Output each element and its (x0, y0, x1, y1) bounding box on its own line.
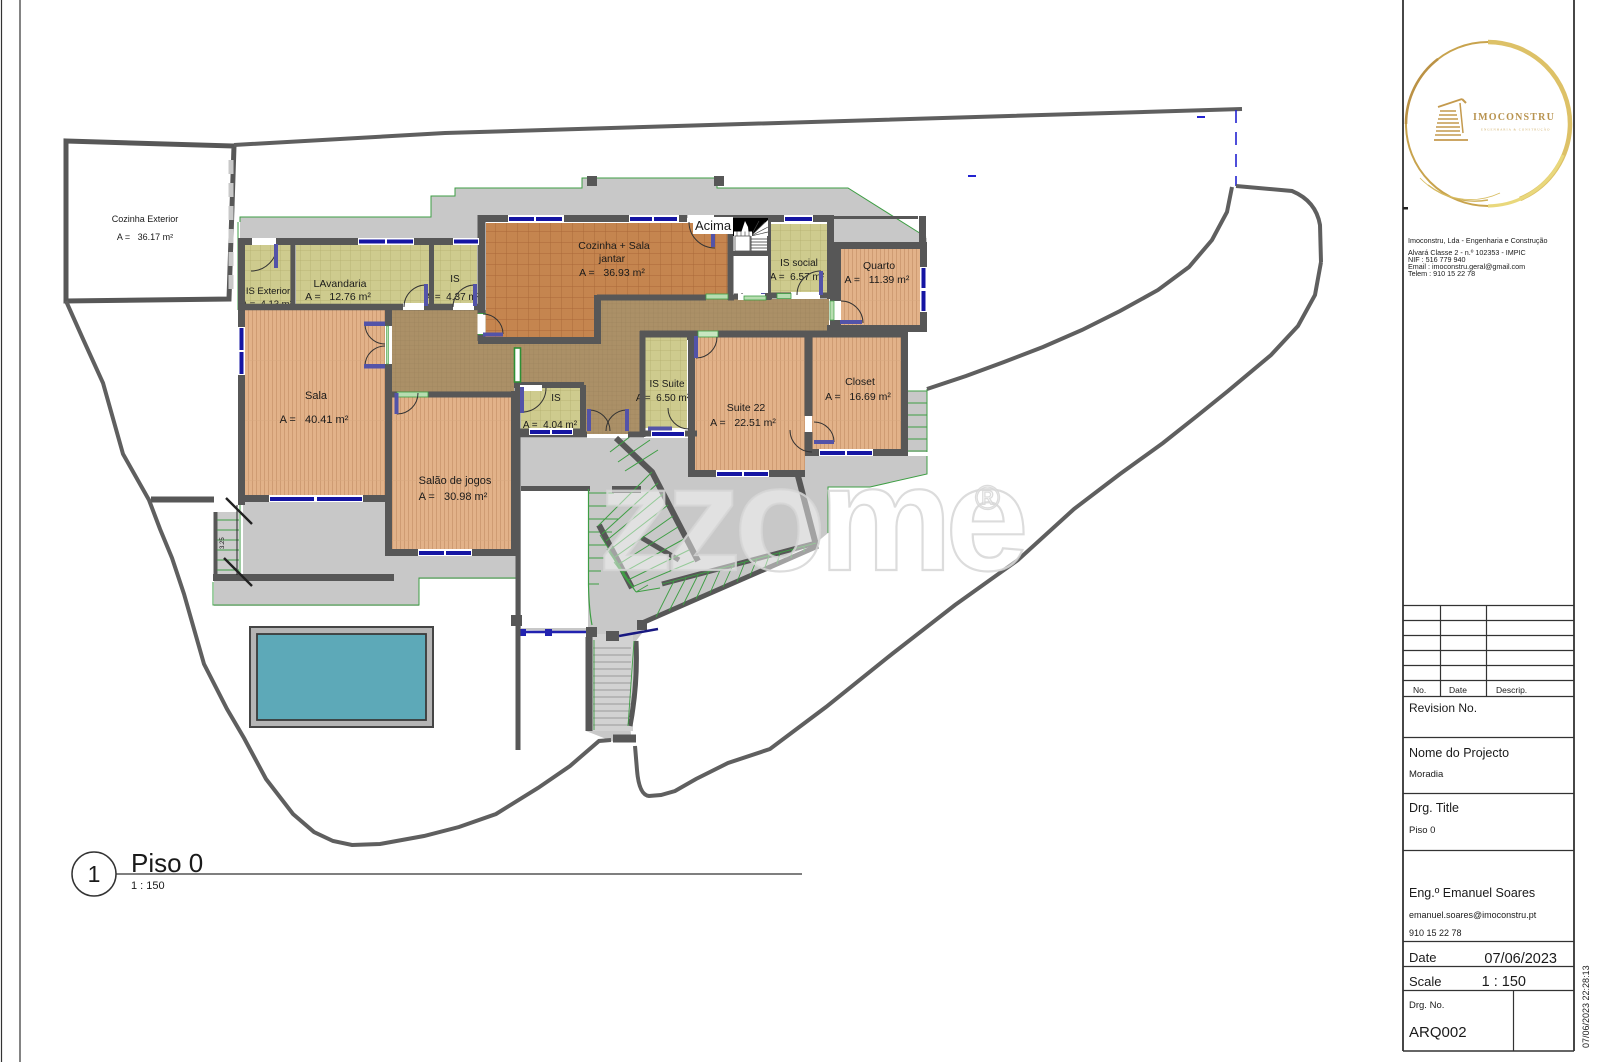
svg-text:Salão de jogos: Salão de jogos (419, 475, 492, 487)
svg-text:Moradia: Moradia (1409, 769, 1444, 780)
svg-text:Acima: Acima (695, 218, 732, 233)
svg-text:Imoconstru, Lda - Engenharia e: Imoconstru, Lda - Engenharia e Construçã… (1408, 236, 1547, 245)
svg-text:IS social: IS social (780, 258, 818, 269)
svg-text:Piso 0: Piso 0 (1409, 825, 1435, 836)
svg-text:Drg. No.: Drg. No. (1409, 1000, 1444, 1011)
svg-text:1 : 150: 1 : 150 (131, 880, 165, 892)
svg-text:A = 12.76 m²: A = 12.76 m² (305, 291, 371, 303)
svg-text:Nome do Projecto: Nome do Projecto (1409, 746, 1509, 760)
svg-text:Drg. Title: Drg. Title (1409, 801, 1459, 815)
svg-text:Cozinha Exterior: Cozinha Exterior (112, 214, 179, 224)
svg-text:emanuel.soares@imoconstru.pt: emanuel.soares@imoconstru.pt (1409, 910, 1537, 920)
svg-text:Revision No.: Revision No. (1409, 701, 1477, 715)
svg-text:IS: IS (551, 393, 561, 404)
svg-text:Suite 22: Suite 22 (727, 402, 766, 414)
svg-text:1: 1 (88, 861, 101, 887)
svg-text:07/06/2023: 07/06/2023 (1484, 951, 1557, 967)
svg-text:zzome: zzome (598, 434, 1024, 602)
svg-text:No.: No. (1413, 685, 1426, 695)
svg-text:A = 30.98 m²: A = 30.98 m² (419, 491, 488, 503)
svg-text:ENGENHARIA & CONSTRUÇÃO: ENGENHARIA & CONSTRUÇÃO (1481, 127, 1550, 132)
svg-text:IS Exterior: IS Exterior (246, 286, 290, 297)
svg-text:Piso 0: Piso 0 (131, 848, 203, 878)
svg-text:A = 36.93 m²: A = 36.93 m² (579, 267, 645, 279)
svg-text:Descrip.: Descrip. (1496, 685, 1527, 695)
svg-text:Eng.º Emanuel Soares: Eng.º Emanuel Soares (1409, 886, 1535, 900)
svg-text:A = 22.51 m²: A = 22.51 m² (710, 417, 776, 429)
svg-text:A = 16.69 m²: A = 16.69 m² (825, 391, 891, 403)
svg-text:Sala: Sala (305, 390, 328, 402)
svg-text:IMOCONSTRU: IMOCONSTRU (1473, 112, 1555, 123)
svg-text:A = 6.57 m²: A = 6.57 m² (770, 272, 825, 283)
svg-text:Telem : 910 15 22 78: Telem : 910 15 22 78 (1408, 269, 1475, 278)
svg-text:LAvandaria: LAvandaria (314, 278, 367, 290)
svg-text:Quarto: Quarto (863, 260, 895, 272)
svg-text:07/06/2023 22:28:13: 07/06/2023 22:28:13 (1581, 965, 1591, 1048)
svg-text:Date: Date (1409, 950, 1436, 965)
svg-text:3.25: 3.25 (220, 537, 226, 549)
svg-text:1 : 150: 1 : 150 (1482, 974, 1526, 990)
svg-text:A = 40.41 m²: A = 40.41 m² (280, 414, 349, 426)
svg-text:A = 11.39 m²: A = 11.39 m² (845, 274, 910, 286)
svg-text:jantar: jantar (598, 253, 626, 265)
svg-text:Cozinha + Sala: Cozinha + Sala (578, 240, 650, 252)
svg-text:A = 36.17 m²: A = 36.17 m² (117, 232, 173, 242)
svg-text:910 15 22 78: 910 15 22 78 (1409, 928, 1462, 938)
svg-text:IS Suite: IS Suite (649, 379, 684, 390)
svg-text:Scale: Scale (1409, 974, 1442, 989)
svg-text:IS: IS (450, 274, 460, 285)
svg-text:Closet: Closet (845, 376, 875, 388)
svg-text:®: ® (975, 479, 1000, 517)
svg-text:Date: Date (1449, 685, 1467, 695)
svg-text:ARQ002: ARQ002 (1409, 1024, 1467, 1041)
